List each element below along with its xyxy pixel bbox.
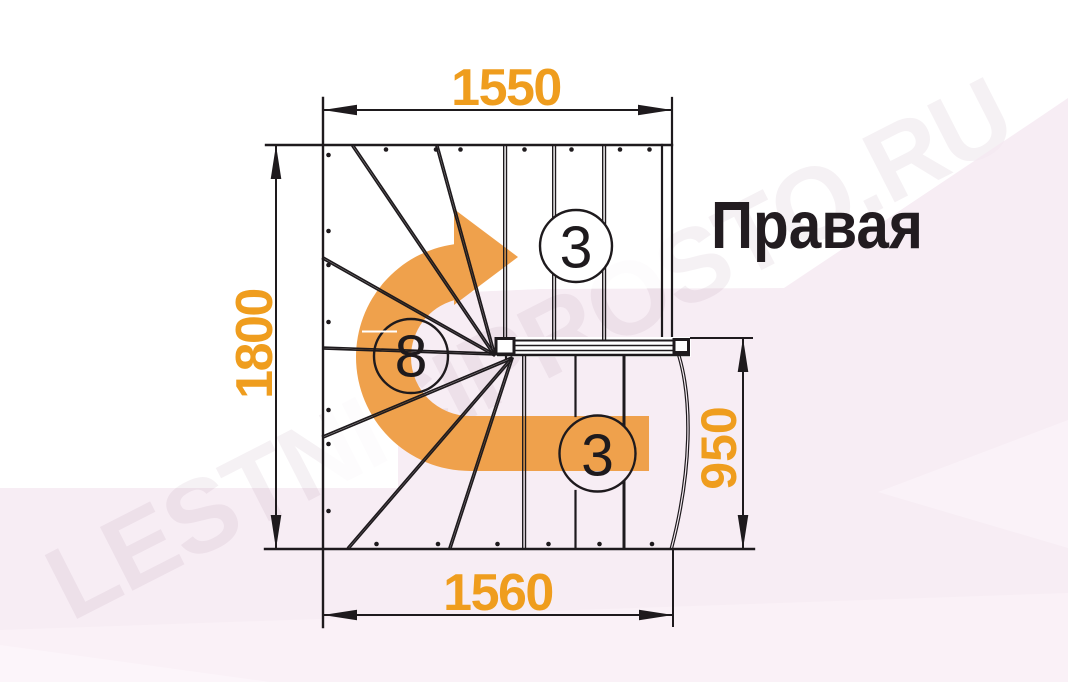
svg-text:1550: 1550 — [451, 59, 561, 117]
svg-text:950: 950 — [691, 406, 747, 489]
svg-text:8: 8 — [395, 324, 428, 390]
svg-text:1560: 1560 — [443, 564, 553, 622]
svg-text:3: 3 — [581, 423, 614, 489]
svg-text:Правая: Правая — [711, 188, 923, 263]
svg-text:1800: 1800 — [226, 289, 284, 399]
svg-text:3: 3 — [560, 215, 593, 281]
